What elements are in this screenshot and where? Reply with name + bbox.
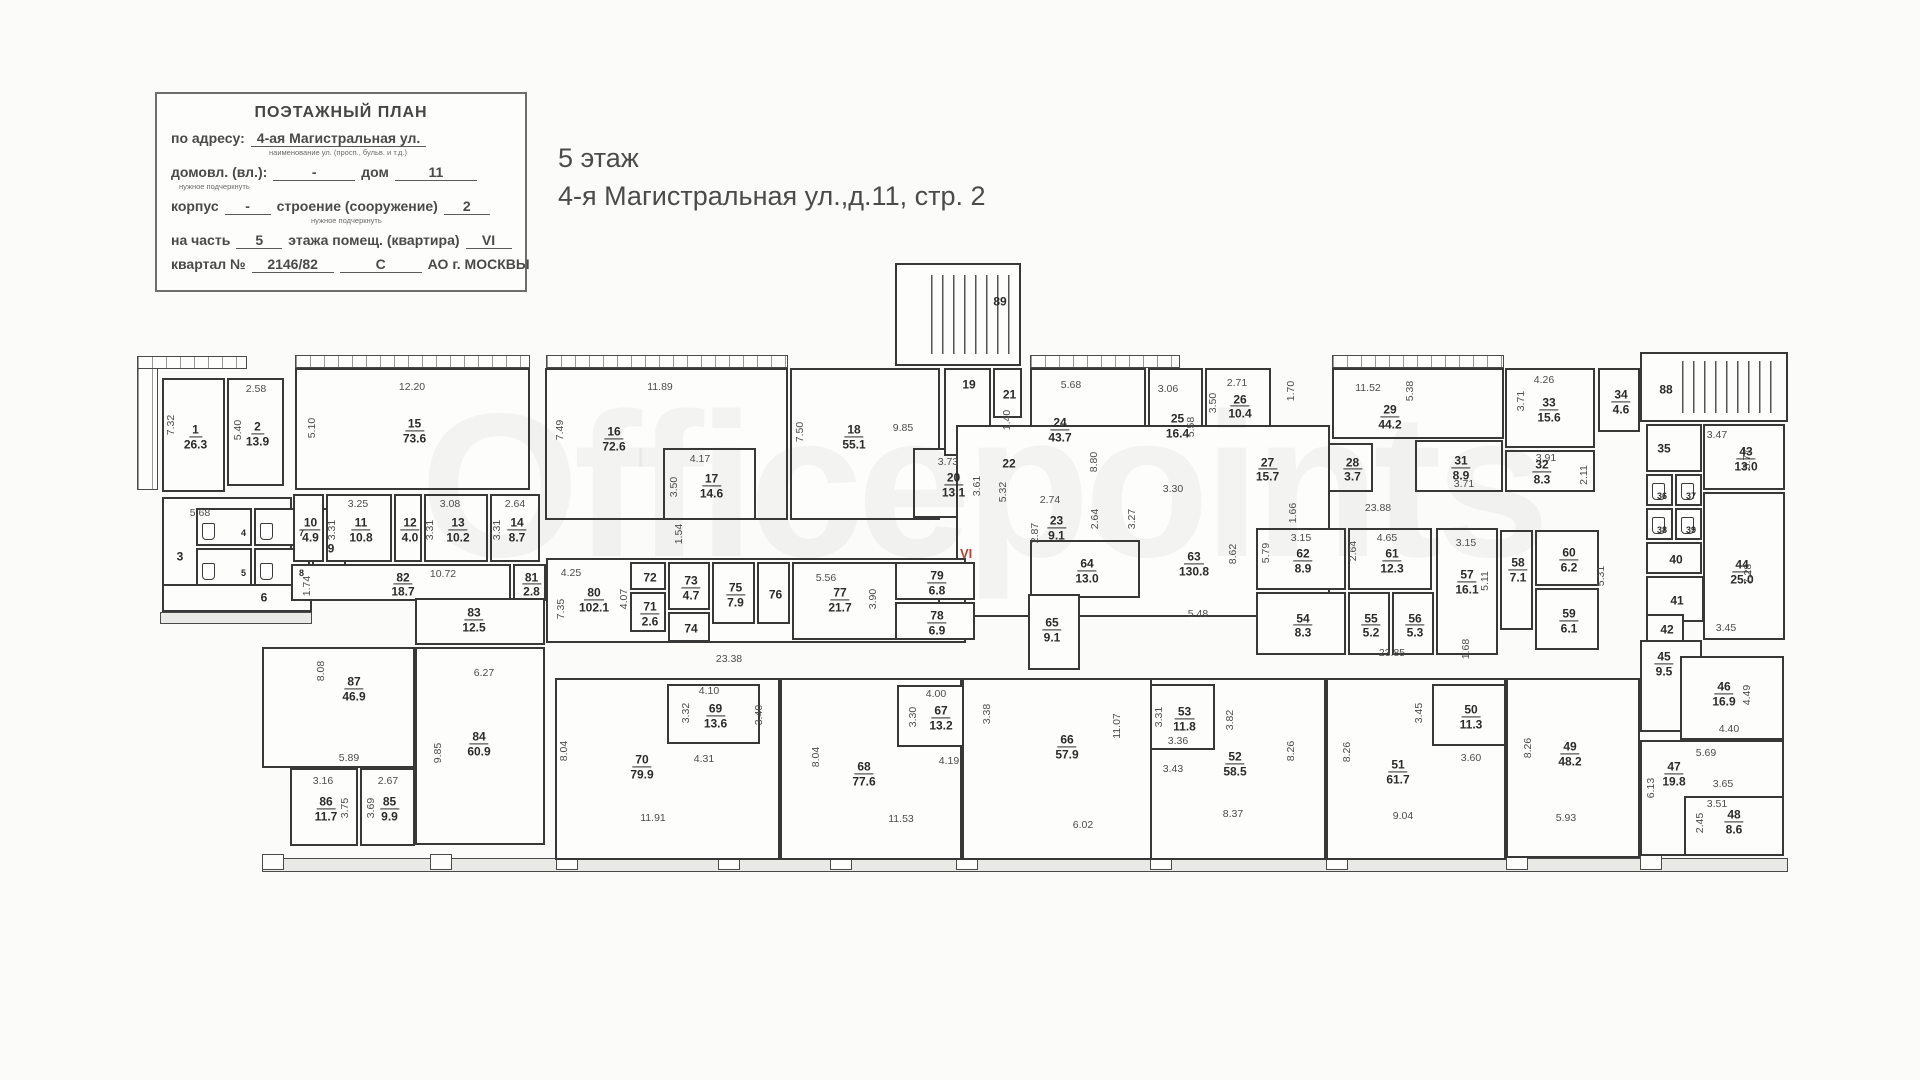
house-label: дом <box>361 164 389 180</box>
household-value: - <box>273 164 355 181</box>
room-label: 8746.9 <box>342 675 365 702</box>
balcony-strip <box>1332 355 1504 368</box>
room-label: 36 <box>1654 492 1670 501</box>
room-46: 4616.9 <box>1680 656 1784 740</box>
address-row: по адресу: 4-ая Магистральная ул. <box>171 130 511 147</box>
room-label: 5716.1 <box>1455 568 1478 595</box>
room-label: 35 <box>1654 443 1673 456</box>
room-label: 587.1 <box>1508 556 1527 583</box>
stroenie-label: строение (сооружение) <box>277 198 438 214</box>
room-13: 1310.2 <box>424 494 488 562</box>
kvartal-label: квартал № <box>171 256 246 272</box>
room-label: 555.2 <box>1361 612 1380 639</box>
room-76: 76 <box>757 562 790 624</box>
room-15: 1573.6 <box>295 368 530 490</box>
room-50: 5011.3 <box>1432 684 1506 746</box>
exterior-wall <box>262 858 1788 872</box>
address-label: по адресу: <box>171 130 245 146</box>
room-35: 35 <box>1646 424 1702 472</box>
section-mark: VI <box>960 546 972 561</box>
room-81: 812.8 <box>513 564 546 601</box>
dimension-label: 1.70 <box>1285 381 1297 401</box>
room-32: 328.3 <box>1505 450 1595 492</box>
room-label: 4616.9 <box>1712 680 1735 707</box>
room-89: 89 <box>895 263 1021 366</box>
room-60: 606.2 <box>1535 530 1599 586</box>
room-label: 39 <box>1683 526 1699 535</box>
room-label: 124.0 <box>400 516 419 543</box>
room-69: 6913.6 <box>667 684 760 744</box>
room-label: 757.9 <box>726 581 745 608</box>
korpus-label: корпус <box>171 198 219 214</box>
room-label: 8611.7 <box>315 795 338 822</box>
room-49: 4948.2 <box>1506 678 1640 858</box>
room-57: 5716.1 <box>1436 528 1498 655</box>
room-87: 8746.9 <box>262 647 415 768</box>
room-label: 318.9 <box>1451 454 1470 481</box>
title-block: ПОЭТАЖНЫЙ ПЛАН по адресу: 4-ая Магистрал… <box>155 92 527 292</box>
room-58: 587.1 <box>1500 530 1533 630</box>
room-label: 734.7 <box>681 574 700 601</box>
room-label: 2610.4 <box>1228 393 1251 420</box>
room-label: 5 <box>238 569 249 578</box>
room-36: 36 <box>1646 474 1673 506</box>
room-label: 283.7 <box>1343 456 1362 483</box>
room-label: 328.3 <box>1532 458 1551 485</box>
room-72: 72 <box>630 562 666 590</box>
stroenie-value: 2 <box>444 198 490 215</box>
room-1: 126.3 <box>162 378 225 492</box>
room-11: 1110.8 <box>326 494 392 562</box>
room-label: 8312.5 <box>462 606 485 633</box>
room-37: 37 <box>1675 474 1702 506</box>
room-5: 5 <box>196 548 252 586</box>
exterior-wall <box>160 612 312 624</box>
room-4: 4 <box>196 508 252 546</box>
balcony-strip <box>137 368 158 490</box>
room-59: 596.1 <box>1535 588 1599 650</box>
room-42: 42 <box>1646 614 1684 642</box>
room-label: 1110.8 <box>349 516 372 543</box>
room-label: 6657.9 <box>1055 733 1078 760</box>
room-label: 6 <box>258 592 271 605</box>
room-label: 8460.9 <box>467 730 490 757</box>
floor-value: 5 <box>236 232 282 249</box>
okrug-value: С <box>340 256 422 273</box>
room-17: 1714.6 <box>663 448 756 520</box>
room-66: 6657.9 <box>962 678 1152 860</box>
balcony-strip <box>137 356 247 369</box>
room-29: 2944.2 <box>1332 368 1504 439</box>
building-row: корпус - строение (сооружение) 2 <box>171 198 511 215</box>
room-86: 8611.7 <box>290 768 358 846</box>
room-61: 6112.3 <box>1348 528 1432 590</box>
korpus-value: - <box>225 198 271 215</box>
room-label: 8218.7 <box>391 571 414 598</box>
room-85: 859.9 <box>360 768 415 846</box>
room-label: 80102.1 <box>579 586 609 613</box>
room-label: 1714.6 <box>700 472 723 499</box>
room-label: 126.3 <box>184 423 207 450</box>
dimension-label: 23.38 <box>716 653 742 665</box>
room-label: 72 <box>640 572 659 585</box>
household-sub: нужное подчеркнуть <box>179 182 511 191</box>
address-sub: наименование ул. (просп., бульв. и т.д.) <box>269 148 511 157</box>
room-39: 39 <box>1675 508 1702 540</box>
page-header: 5 этаж 4-я Магистральная ул.,д.11, стр. … <box>558 140 986 216</box>
room-label: 6713.2 <box>929 704 952 731</box>
room-71: 712.6 <box>630 592 666 632</box>
room-label: 3 <box>174 551 187 564</box>
room-21: 21 <box>993 368 1022 418</box>
pilaster <box>430 854 452 870</box>
room-label: 6877.6 <box>852 760 875 787</box>
address-title: 4-я Магистральная ул.,д.11, стр. 2 <box>558 178 986 216</box>
room-label: 4313.0 <box>1734 445 1757 472</box>
room-label: 74 <box>681 623 700 636</box>
room-62: 628.9 <box>1256 528 1346 590</box>
room-label: 5011.3 <box>1460 703 1483 730</box>
room-82: 8218.7 <box>291 564 511 601</box>
room-79: 796.8 <box>895 562 975 600</box>
room-53: 5311.8 <box>1150 684 1215 750</box>
room-55: 555.2 <box>1348 592 1390 655</box>
room-label: 6112.3 <box>1380 547 1403 574</box>
room-label: 4948.2 <box>1558 740 1581 767</box>
room-label: 41 <box>1667 595 1686 608</box>
room-label: 659.1 <box>1042 616 1061 643</box>
room-56: 565.3 <box>1392 592 1434 655</box>
room-label: 344.6 <box>1611 388 1630 415</box>
room-label: 4 <box>238 529 249 538</box>
room-label: 21 <box>1000 389 1019 402</box>
room-label: 812.8 <box>522 571 541 598</box>
room-74: 74 <box>668 612 710 642</box>
balcony-strip <box>1030 355 1180 368</box>
premises-label: этажа помещ. (квартира) <box>288 232 459 248</box>
room-31: 318.9 <box>1415 440 1503 492</box>
address-value: 4-ая Магистральная ул. <box>251 130 427 147</box>
room-label: 76 <box>766 589 785 602</box>
room-88: 88 <box>1640 352 1788 422</box>
room-label: 596.1 <box>1559 607 1578 634</box>
balcony-strip <box>546 355 788 368</box>
household-row: домовл. (вл.): - дом 11 <box>171 164 511 181</box>
room-label: 19 <box>959 379 978 392</box>
room-10: 104.9 <box>293 494 324 562</box>
room-label: 712.6 <box>640 600 659 627</box>
household-label: домовл. (вл.): <box>171 164 267 180</box>
room-label: 2944.2 <box>1378 403 1401 430</box>
room-44: 4425.0 <box>1703 492 1785 640</box>
premises-value: VI <box>466 232 512 249</box>
room-label: 548.3 <box>1293 612 1312 639</box>
room-label: 37 <box>1683 492 1699 501</box>
room-12: 124.0 <box>394 494 422 562</box>
room-label: 88 <box>1656 384 1675 397</box>
room-40: 40 <box>1646 542 1702 574</box>
room-14: 148.7 <box>490 494 540 562</box>
room-label: 3315.6 <box>1537 396 1560 423</box>
room-label: 5311.8 <box>1173 705 1196 732</box>
room-label: 1855.1 <box>842 423 865 450</box>
dimension-label: 23.88 <box>1365 502 1391 514</box>
room-label: 148.7 <box>507 516 526 543</box>
room-label: 89 <box>990 296 1009 309</box>
room-2: 213.9 <box>227 378 284 486</box>
room-label: 4719.8 <box>1662 760 1685 787</box>
room-label: 859.9 <box>380 795 399 822</box>
room-48: 488.6 <box>1684 796 1784 856</box>
floor-part-row: на часть 5 этажа помещ. (квартира) VI <box>171 232 511 249</box>
dimension-label: 1.54 <box>673 524 685 544</box>
balcony-strip <box>295 355 530 368</box>
room-label: 6913.6 <box>704 702 727 729</box>
title-block-title: ПОЭТАЖНЫЙ ПЛАН <box>171 104 511 122</box>
room-label: 1573.6 <box>403 417 426 444</box>
room-label: 5161.7 <box>1386 758 1409 785</box>
room-label: 4425.0 <box>1730 558 1753 585</box>
room-83: 8312.5 <box>415 598 545 645</box>
room-28: 283.7 <box>1328 443 1373 492</box>
room-label: 606.2 <box>1559 546 1578 573</box>
room-label: 63130.8 <box>1179 550 1209 577</box>
room-6: 6 <box>162 584 312 612</box>
room-64: 6413.0 <box>1030 540 1140 598</box>
room-33: 3315.6 <box>1505 368 1595 448</box>
pilaster <box>1640 854 1662 870</box>
room-43: 4313.0 <box>1703 424 1785 490</box>
room-label: 786.9 <box>927 609 946 636</box>
room-78: 786.9 <box>895 602 975 640</box>
kvartal-row: квартал № 2146/82 С АО г. МОСКВЫ <box>171 256 511 273</box>
floor-title: 5 этаж <box>558 140 986 178</box>
room-54: 548.3 <box>1256 592 1346 655</box>
room-label: 42 <box>1657 624 1676 637</box>
room-label: 796.8 <box>927 569 946 596</box>
city-label: АО г. МОСКВЫ <box>428 256 530 272</box>
kvartal-value: 2146/82 <box>252 256 334 273</box>
room-label: 628.9 <box>1293 547 1312 574</box>
room-label: 488.6 <box>1724 808 1743 835</box>
part-label: на часть <box>171 232 230 248</box>
room-label: 1672.6 <box>602 425 625 452</box>
room-label: 104.9 <box>301 516 320 543</box>
room-label: 7079.9 <box>630 753 653 780</box>
room-73: 734.7 <box>668 562 710 610</box>
room-label: 1310.2 <box>446 516 469 543</box>
room-label: 40 <box>1666 554 1685 567</box>
room-38: 38 <box>1646 508 1673 540</box>
room-34: 344.6 <box>1598 368 1640 432</box>
room-label: 5258.5 <box>1223 750 1246 777</box>
building-sub: нужное подчеркнуть <box>311 216 511 225</box>
room-label: 38 <box>1654 526 1670 535</box>
room-75: 757.9 <box>712 562 755 624</box>
room-label: 7721.7 <box>828 586 851 613</box>
room-84: 8460.9 <box>415 647 545 845</box>
room-label: 459.5 <box>1654 650 1673 677</box>
room-65: 659.1 <box>1028 594 1080 670</box>
pilaster <box>262 854 284 870</box>
room-label: 565.3 <box>1405 612 1424 639</box>
room-label: 213.9 <box>246 420 269 447</box>
room-label: 6413.0 <box>1075 557 1098 584</box>
house-value: 11 <box>395 164 477 181</box>
